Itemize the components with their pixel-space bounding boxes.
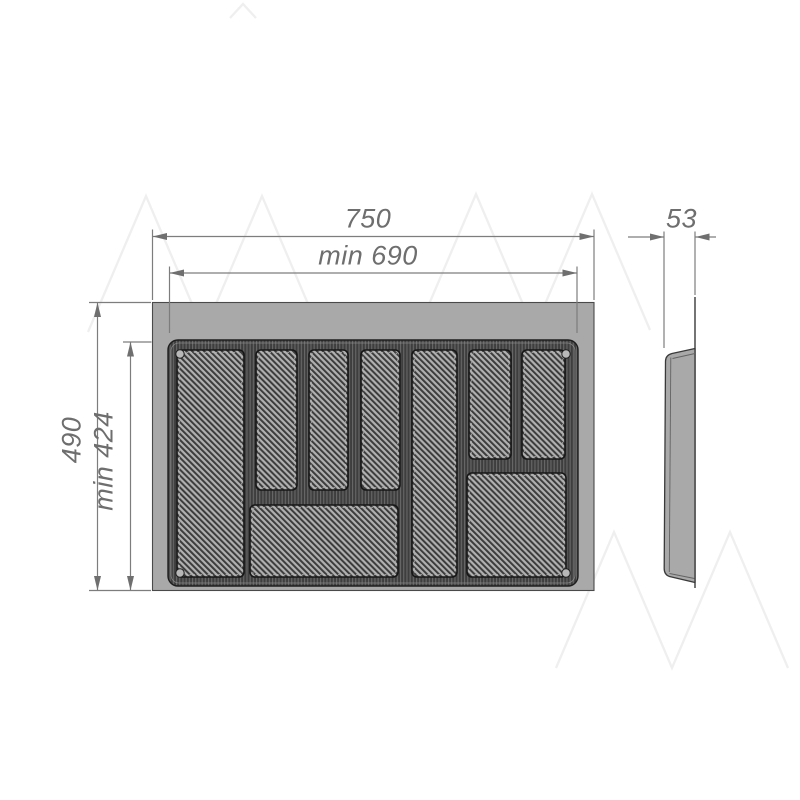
arrowhead xyxy=(580,233,595,240)
dim-width-total-label: 750 xyxy=(345,204,392,234)
arrowhead xyxy=(127,576,134,591)
dim-width-min-label: min 690 xyxy=(318,241,418,271)
tray-compartment-wide-bottom-right xyxy=(467,473,566,577)
tray-compartment-slot-1 xyxy=(256,350,297,490)
tray-drawing-svg: 750 min 690 490 min 424 53 xyxy=(0,0,800,800)
watermark-zigzag xyxy=(230,4,256,18)
side-profile-body xyxy=(664,349,695,583)
tray-compartment-left-tall xyxy=(177,350,244,577)
arrowhead xyxy=(696,234,710,241)
arrowhead xyxy=(153,233,168,240)
corner-stud xyxy=(176,350,184,358)
corner-stud xyxy=(176,569,184,577)
dim-height-min-label: min 424 xyxy=(89,411,119,511)
tray-compartment-slot-5 xyxy=(522,350,565,459)
corner-stud xyxy=(562,350,570,358)
arrowhead xyxy=(563,270,578,277)
front-view xyxy=(153,303,595,591)
tray-compartment-slot-2 xyxy=(309,350,348,490)
dim-depth-label: 53 xyxy=(666,204,697,234)
corner-stud xyxy=(562,569,570,577)
dim-height-min xyxy=(123,342,152,591)
dim-depth xyxy=(628,232,716,349)
tray-compartment-slot-3 xyxy=(361,350,400,490)
drawing-canvas: 750 min 690 490 min 424 53 xyxy=(0,0,800,800)
dim-height-total-label: 490 xyxy=(57,417,87,464)
side-view xyxy=(664,297,695,588)
tray-compartment-middle-tall xyxy=(412,350,457,577)
arrowhead xyxy=(650,234,664,241)
arrowhead xyxy=(127,342,134,357)
arrowhead xyxy=(94,576,101,591)
tray-compartment-wide-bottom-left xyxy=(250,505,398,577)
tray-compartment-slot-4 xyxy=(469,350,511,459)
